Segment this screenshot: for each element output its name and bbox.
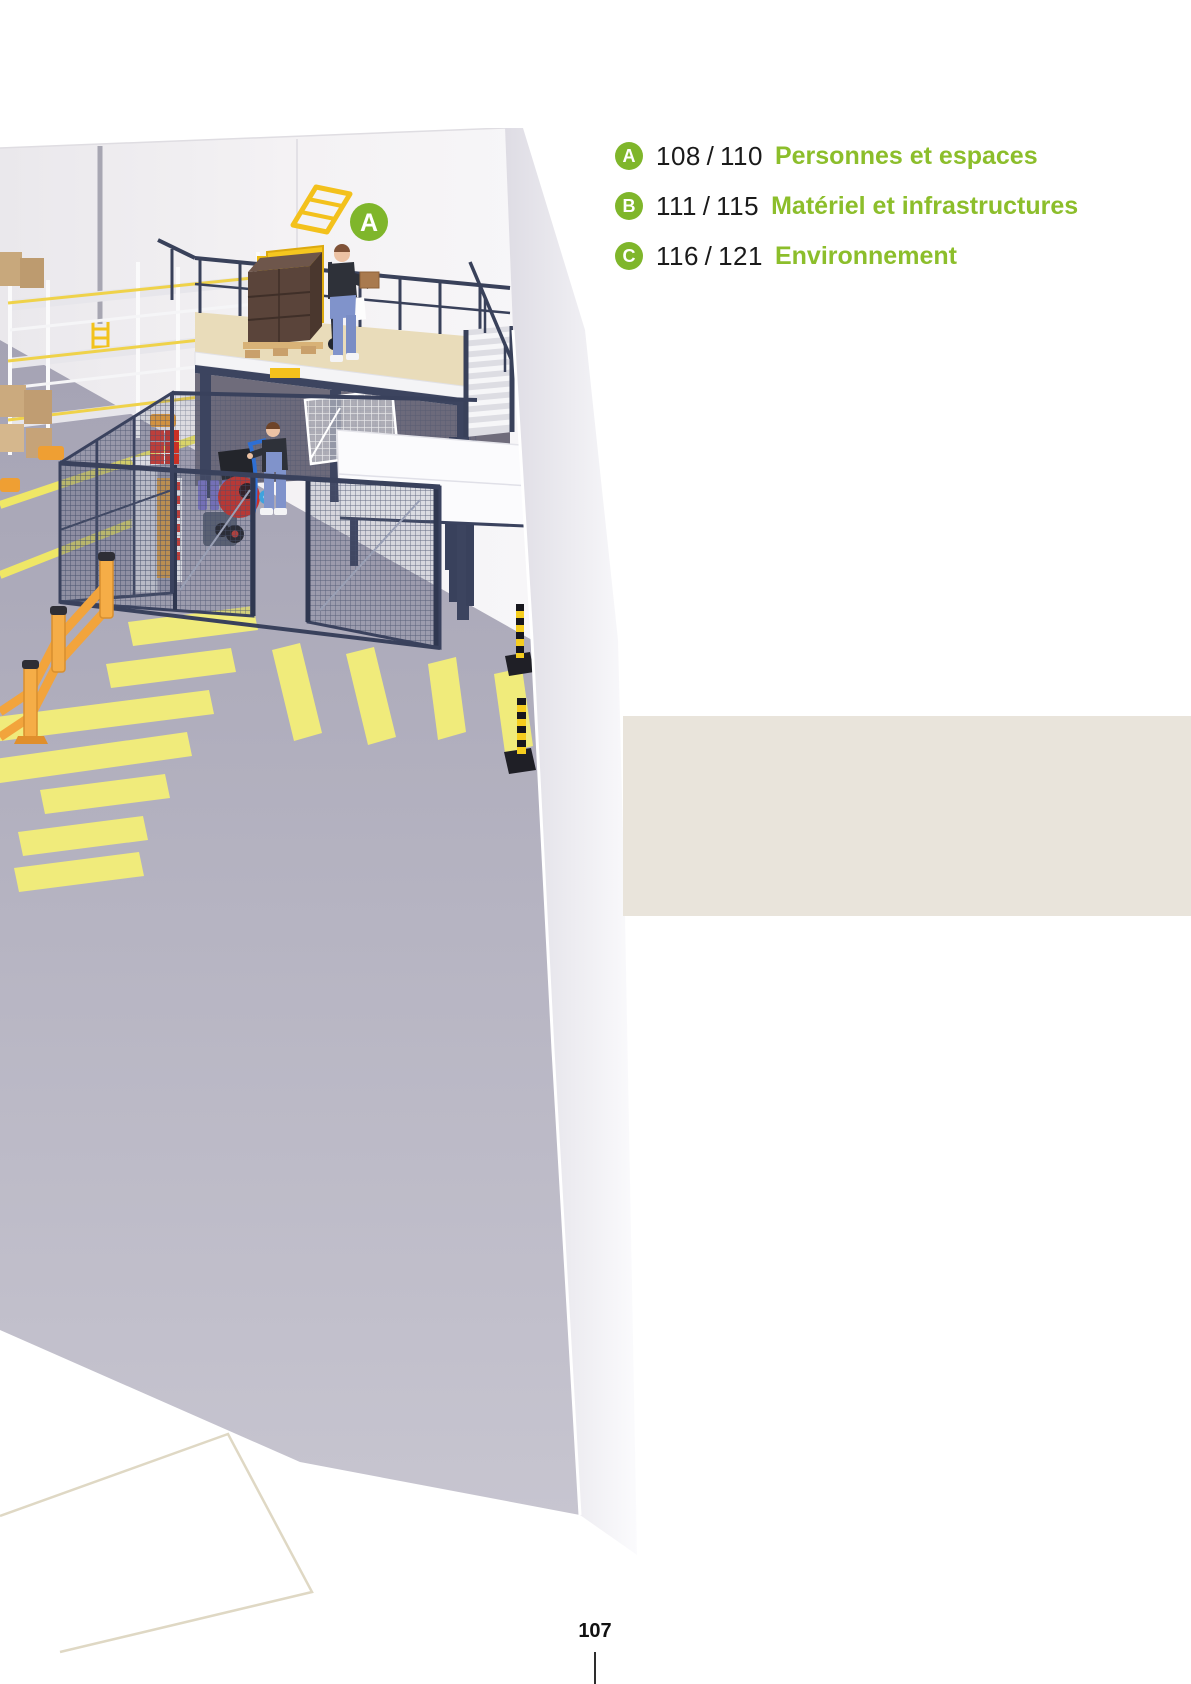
legend-item-c: C 116 / 121 Environnement bbox=[615, 231, 1078, 281]
catalog-page: A A 108 / 110 Personnes et espaces B 111… bbox=[0, 0, 1191, 1684]
footer-rule bbox=[594, 1652, 596, 1684]
side-band bbox=[623, 716, 1191, 916]
legend-label-a: Personnes et espaces bbox=[775, 142, 1038, 171]
page-number: 107 bbox=[560, 1620, 630, 1643]
floor-zone-outline bbox=[0, 1434, 312, 1652]
legend-pages-b: 111 / 115 bbox=[656, 191, 759, 222]
svg-text:A: A bbox=[360, 209, 378, 237]
legend: A 108 / 110 Personnes et espaces B 111 /… bbox=[615, 131, 1078, 281]
marker-a-badge: A bbox=[350, 203, 388, 241]
legend-label-c: Environnement bbox=[775, 242, 957, 271]
legend-badge-a: A bbox=[615, 142, 643, 170]
legend-badge-c: C bbox=[615, 242, 643, 270]
legend-item-a: A 108 / 110 Personnes et espaces bbox=[615, 131, 1078, 181]
legend-label-b: Matériel et infrastructures bbox=[771, 192, 1078, 221]
legend-badge-b: B bbox=[615, 192, 643, 220]
legend-pages-c: 116 / 121 bbox=[656, 241, 763, 272]
warehouse-illustration: A bbox=[0, 128, 640, 1684]
legend-pages-a: 108 / 110 bbox=[656, 141, 763, 172]
legend-item-b: B 111 / 115 Matériel et infrastructures bbox=[615, 181, 1078, 231]
